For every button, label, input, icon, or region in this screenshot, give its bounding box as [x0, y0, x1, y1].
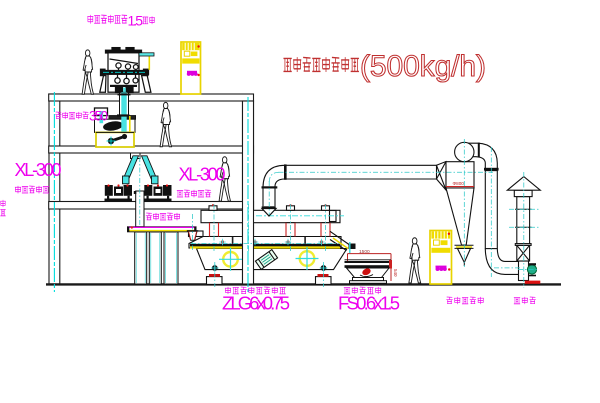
svg-text:XL-300: XL-300 — [179, 165, 226, 185]
svg-text:ZLG6x0.75: ZLG6x0.75 — [222, 293, 290, 314]
svg-text:350: 350 — [89, 109, 108, 124]
svg-text:FS0.6x1.5: FS0.6x1.5 — [338, 293, 400, 314]
svg-text:Φ800: Φ800 — [453, 181, 465, 186]
svg-text:XL-300: XL-300 — [15, 160, 62, 180]
svg-text:1.5: 1.5 — [128, 13, 144, 29]
svg-text:1500: 1500 — [359, 249, 370, 255]
svg-text:540: 540 — [393, 269, 398, 277]
svg-text:(500kg/h): (500kg/h) — [360, 50, 486, 83]
